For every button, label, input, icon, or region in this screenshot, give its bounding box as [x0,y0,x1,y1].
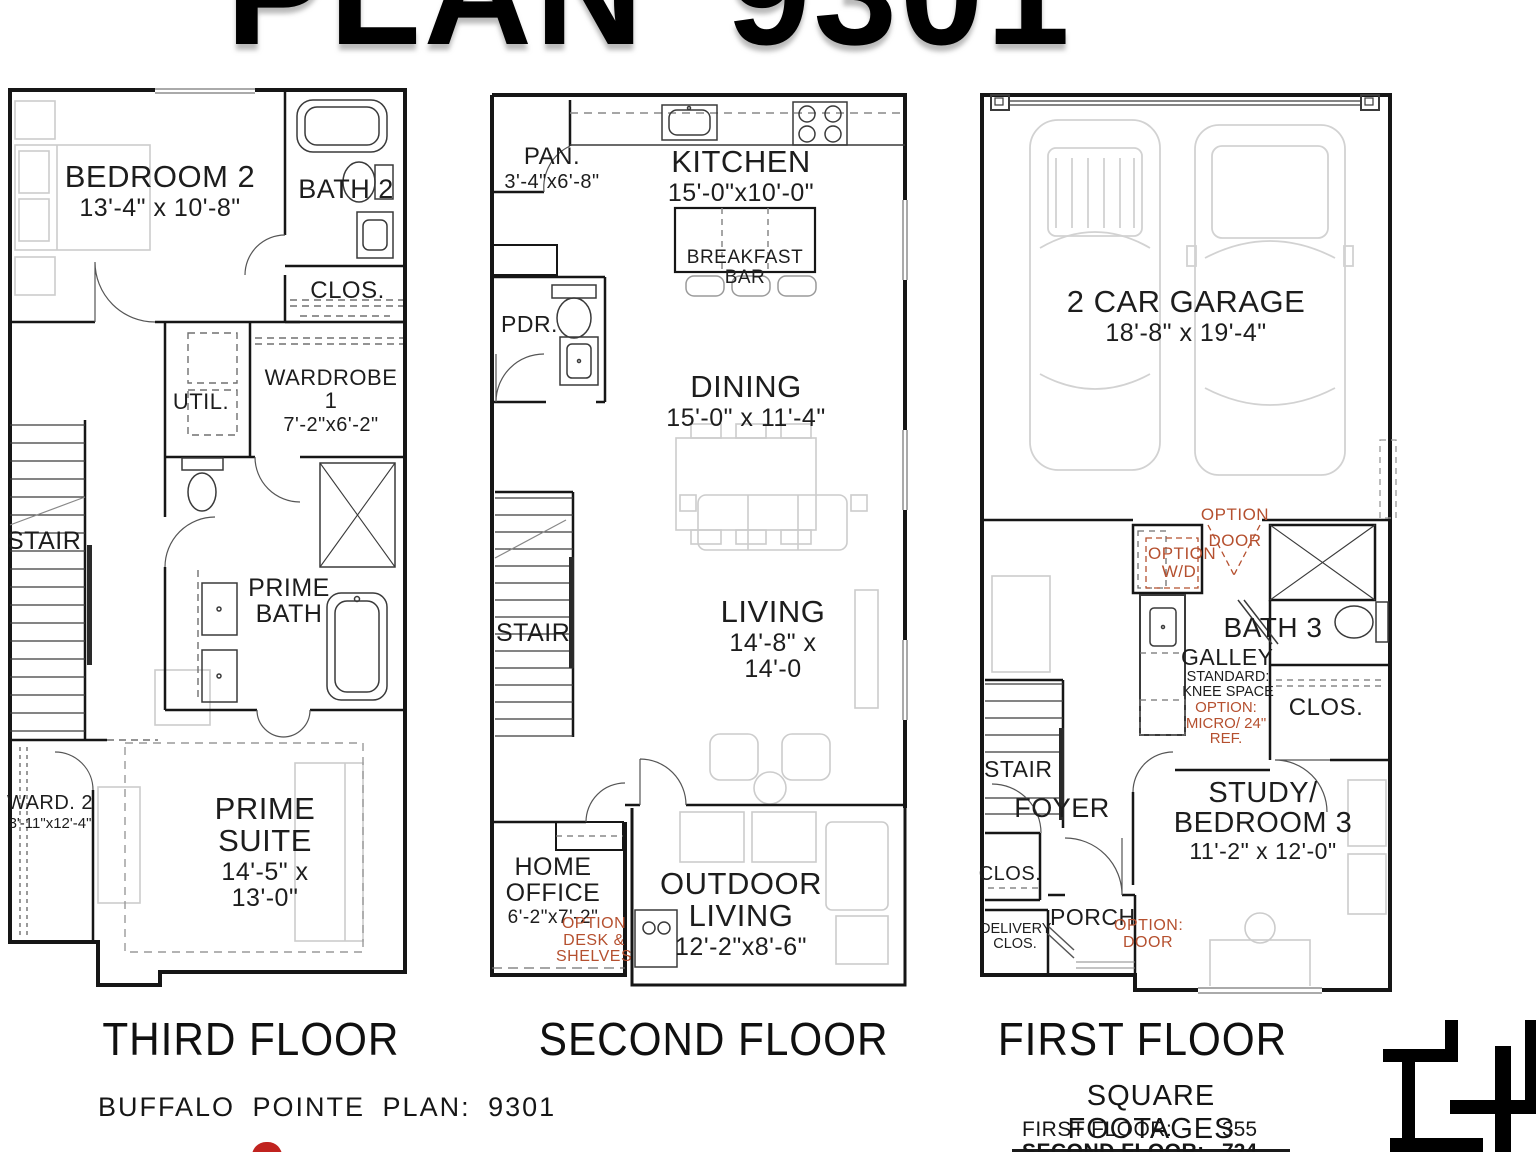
room-label-stair: STAIR [496,620,558,646]
first-floor-plan: 2 CAR GARAGE 18'-8" x 19'-4" OPTION DOOR… [976,88,1400,1013]
builder-red-logo-icon [252,1142,282,1152]
stair-treads [495,498,574,736]
room-label-study-bedroom3: STUDY/ BEDROOM 3 11'-2" x 12'-0" [1158,778,1368,864]
option-label-door-entry: OPTION: DOOR [1114,918,1182,951]
second-floor-title: SECOND FLOOR [539,1012,856,1066]
second-floor-plan: PAN. 3'-4"x6'-8" KITCHEN 15'-0"x10'-0" B… [486,88,910,1008]
room-label-bedroom2: BEDROOM 2 13'-4" x 10'-8" [45,161,275,221]
room-label-stair: STAIR [7,528,69,554]
room-label-garage: 2 CAR GARAGE 18'-8" x 19'-4" [1056,286,1316,346]
sqf-row-label: FIRST FLOOR: [1022,1118,1172,1142]
door-swings [55,235,310,790]
sqf-row-label: SECOND FLOOR: [1022,1140,1205,1152]
room-label-outdoor-living: OUTDOOR LIVING 12'-2"x8'-6" [646,868,836,960]
interior-walls [492,100,905,850]
third-floor-plan: BEDROOM 2 13'-4" x 10'-8" BATH 2 CLOS. W… [5,85,415,1015]
label-breakfast-bar: BREAKFAST BAR [676,248,814,288]
room-label-powder: PDR. [501,313,553,337]
room-label-closet-foyer: CLOS. [978,864,1042,885]
room-label-stair: STAIR [984,758,1050,782]
room-label-closet-hall: CLOS. [1276,696,1376,721]
door-swings [496,146,686,822]
room-label-bath3: BATH 3 [1208,613,1338,642]
window-marks [155,86,255,94]
option-label-micro-ref: OPTION: MICRO/ 24" REF. [1184,700,1268,747]
page-title: PLAN 9301 [226,0,1073,79]
first-floor-title: FIRST FLOOR [998,1012,1288,1066]
room-label-util: UTIL. [170,391,232,414]
third-floor-title: THIRD FLOOR [102,1012,387,1066]
plan-name-text: BUFFALO POINTE PLAN: 9301 [98,1092,556,1123]
room-label-delivery-closet: DELIVERY CLOS. [980,922,1050,952]
room-label-ward2: WARD. 2 3'-11"x12'-4" [3,793,97,831]
room-label-bath2: BATH 2 [290,175,402,203]
garage-door [991,95,1379,110]
stair-treads [10,425,92,731]
room-label-closet: CLOS. [295,279,400,304]
floor-plan-sheet: PLAN 9301 [0,0,1536,1152]
option-label-washer-dryer: OPTION W/D [1148,545,1210,580]
room-label-prime-bath: PRIME BATH [243,575,335,627]
room-label-prime-suite: PRIME SUITE 14'-5" x 13'-0" [190,793,340,911]
room-label-wardrobe1: WARDROBE 1 7'-2"x6'-2" [255,367,407,436]
label-galley-standard: STANDARD: KNEE SPACE [1174,670,1282,700]
room-label-living: LIVING 14'-8" x 14'-0 [698,596,848,682]
room-label-kitchen: KITCHEN 15'-0"x10'-0" [636,146,846,206]
room-label-pantry: PAN. 3'-4"x6'-8" [496,145,608,193]
option-label-desk-shelves: OPTION DESK & SHELVES [556,916,632,966]
sqf-row-value: 724 [1222,1140,1257,1152]
room-label-galley: GALLEY [1181,646,1271,670]
room-label-dining: DINING 15'-0" x 11'-4" [661,371,831,431]
sqf-row-value: 355 [1222,1118,1257,1142]
window-marks [901,200,909,720]
room-label-foyer: FOYER [1012,794,1112,822]
window-marks [1076,962,1322,994]
